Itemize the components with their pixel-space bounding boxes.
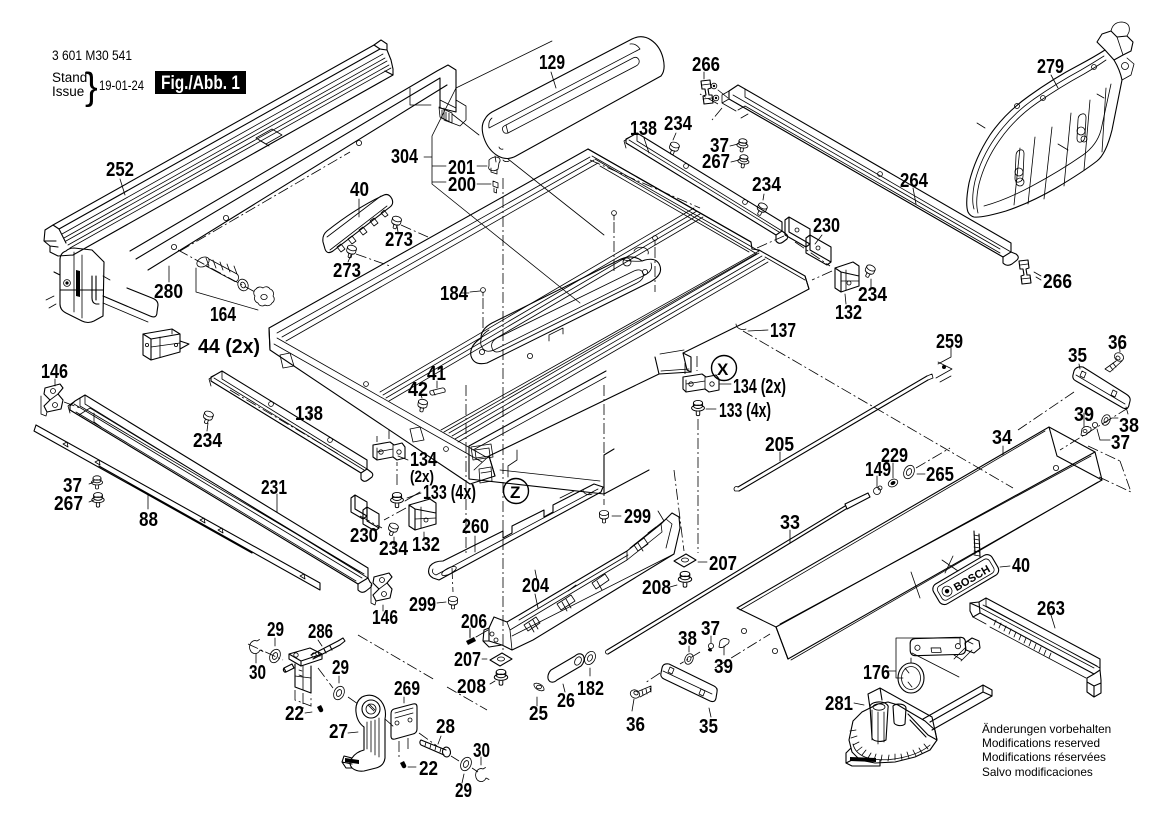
svg-text:299: 299 <box>624 506 651 528</box>
svg-text:Issue: Issue <box>52 84 84 99</box>
svg-text:280: 280 <box>154 281 183 303</box>
svg-text:273: 273 <box>333 260 361 282</box>
svg-text:149: 149 <box>865 459 891 481</box>
svg-text:234: 234 <box>379 538 409 560</box>
svg-text:35: 35 <box>1068 345 1087 367</box>
svg-text:230: 230 <box>350 525 378 547</box>
svg-text:205: 205 <box>765 434 794 456</box>
svg-text:138: 138 <box>630 118 657 140</box>
svg-text:208: 208 <box>642 577 671 599</box>
svg-text:234: 234 <box>664 113 693 135</box>
svg-text:182: 182 <box>577 678 604 700</box>
svg-text:207: 207 <box>454 649 481 671</box>
svg-text:33: 33 <box>780 512 800 534</box>
svg-text:Modifications réservées: Modifications réservées <box>982 750 1106 764</box>
svg-text:234: 234 <box>752 174 782 196</box>
svg-text:34: 34 <box>992 427 1013 449</box>
svg-text:37: 37 <box>701 618 720 640</box>
svg-text:40: 40 <box>1012 555 1030 577</box>
svg-text:41: 41 <box>427 363 446 385</box>
svg-text:146: 146 <box>372 607 398 629</box>
svg-text:164: 164 <box>210 304 237 326</box>
svg-text:X: X <box>717 360 729 379</box>
svg-text:269: 269 <box>394 678 420 700</box>
svg-text:304: 304 <box>391 146 419 168</box>
svg-text:184: 184 <box>440 283 469 305</box>
svg-text:299: 299 <box>409 594 436 616</box>
svg-text:266: 266 <box>692 54 720 76</box>
svg-text:134 (2x): 134 (2x) <box>733 376 786 398</box>
svg-text:42: 42 <box>408 379 428 401</box>
svg-text:265: 265 <box>926 464 954 486</box>
svg-text:36: 36 <box>626 714 645 736</box>
svg-text:40: 40 <box>350 179 369 201</box>
svg-text:207: 207 <box>709 553 737 575</box>
svg-text:38: 38 <box>678 628 697 650</box>
svg-text:286: 286 <box>308 621 333 643</box>
svg-text:19-01-24: 19-01-24 <box>99 78 144 93</box>
svg-text:132: 132 <box>412 534 440 556</box>
svg-text:267: 267 <box>54 493 83 515</box>
svg-text:37: 37 <box>1111 432 1130 454</box>
svg-text:29: 29 <box>267 619 284 641</box>
svg-text:44 (2x): 44 (2x) <box>198 336 260 358</box>
svg-text:Salvo modificaciones: Salvo modificaciones <box>982 765 1093 779</box>
svg-text:27: 27 <box>329 721 348 743</box>
svg-text:146: 146 <box>41 361 68 383</box>
svg-text:279: 279 <box>1037 56 1064 78</box>
svg-text:208: 208 <box>457 676 486 698</box>
svg-text:39: 39 <box>714 656 733 678</box>
svg-text:176: 176 <box>863 662 890 684</box>
svg-text:Fig./Abb. 1: Fig./Abb. 1 <box>161 73 240 94</box>
svg-text:263: 263 <box>1037 598 1065 620</box>
svg-text:138: 138 <box>295 403 323 425</box>
svg-text:25: 25 <box>529 703 548 725</box>
svg-text:22: 22 <box>285 703 304 725</box>
svg-text:28: 28 <box>436 716 455 738</box>
svg-text:264: 264 <box>900 170 929 192</box>
svg-text:29: 29 <box>332 657 349 679</box>
svg-text:259: 259 <box>936 331 963 353</box>
svg-text:137: 137 <box>770 320 796 342</box>
svg-text:234: 234 <box>193 430 223 452</box>
svg-text:35: 35 <box>699 716 718 738</box>
svg-text:204: 204 <box>522 575 550 597</box>
svg-text:26: 26 <box>557 690 575 712</box>
svg-text:30: 30 <box>249 662 266 684</box>
svg-text:281: 281 <box>825 693 853 715</box>
svg-text:252: 252 <box>106 159 134 181</box>
svg-text:Änderungen vorbehalten: Änderungen vorbehalten <box>982 722 1111 736</box>
svg-text:206: 206 <box>461 611 487 633</box>
svg-text:266: 266 <box>1043 271 1072 293</box>
svg-text:3 601 M30 541: 3 601 M30 541 <box>52 48 132 63</box>
svg-text:260: 260 <box>462 516 489 538</box>
svg-text:200: 200 <box>448 174 476 196</box>
svg-text:132: 132 <box>835 302 862 324</box>
svg-text:133 (4x): 133 (4x) <box>719 400 771 422</box>
svg-text:133 (4x): 133 (4x) <box>423 482 476 504</box>
svg-text:22: 22 <box>419 758 438 780</box>
svg-text:267: 267 <box>702 151 730 173</box>
svg-text:}: } <box>85 66 98 108</box>
svg-text:36: 36 <box>1108 332 1127 354</box>
svg-text:88: 88 <box>139 509 158 531</box>
svg-text:Z: Z <box>510 483 520 502</box>
svg-text:Modifications reserved: Modifications reserved <box>982 736 1100 750</box>
svg-text:39: 39 <box>1074 404 1094 426</box>
svg-text:230: 230 <box>813 215 840 237</box>
svg-text:234: 234 <box>858 284 888 306</box>
svg-text:273: 273 <box>385 229 413 251</box>
svg-text:29: 29 <box>455 780 472 802</box>
svg-text:Stand: Stand <box>52 70 87 85</box>
svg-text:129: 129 <box>539 52 565 74</box>
svg-text:231: 231 <box>261 477 287 499</box>
svg-text:30: 30 <box>473 740 490 762</box>
